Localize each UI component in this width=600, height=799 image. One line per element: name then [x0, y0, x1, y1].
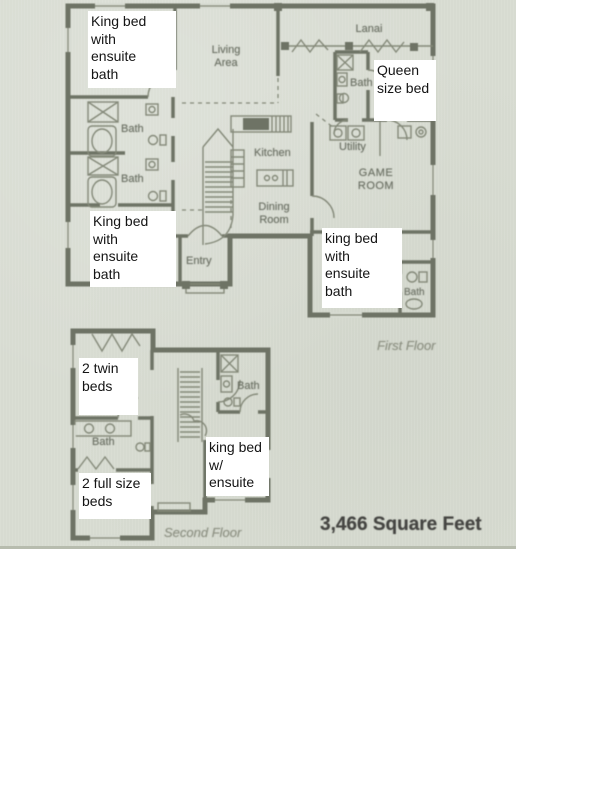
room-label-bath-upper-right-2f: Bath — [237, 380, 260, 393]
room-label-bath-lower-left: Bath — [121, 173, 144, 186]
first-floor-caption: First Floor — [377, 338, 436, 353]
room-label-lanai: Lanai — [351, 23, 387, 36]
annotation-king-bed-top-left: King bed with ensuite bath — [88, 11, 176, 88]
room-label-game-room: GAME ROOM — [352, 167, 400, 193]
room-label-bath-left-2f: Bath — [92, 436, 115, 449]
room-label-entry: Entry — [186, 255, 212, 268]
room-label-utility: Utility — [339, 141, 366, 154]
room-label-bath-upper-left: Bath — [121, 123, 144, 136]
scan-background: Living Area Lanai Bath Utility GAME ROOM… — [0, 0, 516, 549]
scanned-floor-plan-page: Living Area Lanai Bath Utility GAME ROOM… — [0, 0, 600, 799]
room-label-bath-queen: Bath — [350, 77, 373, 90]
second-floor-caption: Second Floor — [164, 525, 241, 540]
room-label-living-area: Living Area — [203, 44, 249, 70]
annotation-two-twin-beds: 2 twin beds — [79, 358, 138, 415]
annotation-king-bed-lower-right: king bed with ensuite bath — [322, 228, 402, 308]
room-label-dining-room: Dining Room — [252, 201, 296, 227]
annotation-king-bed-lower-left: King bed with ensuite bath — [90, 211, 176, 287]
square-footage-label: 3,466 Square Feet — [320, 514, 482, 536]
room-label-bath-bottom-right: Bath — [404, 286, 425, 299]
room-label-kitchen: Kitchen — [254, 147, 291, 160]
annotation-two-full-size-beds: 2 full size beds — [79, 473, 151, 519]
annotation-queen-bed: Queen size bed — [374, 60, 436, 121]
annotation-king-bed-ensuite-2f: king bed w/ ensuite — [206, 437, 269, 496]
